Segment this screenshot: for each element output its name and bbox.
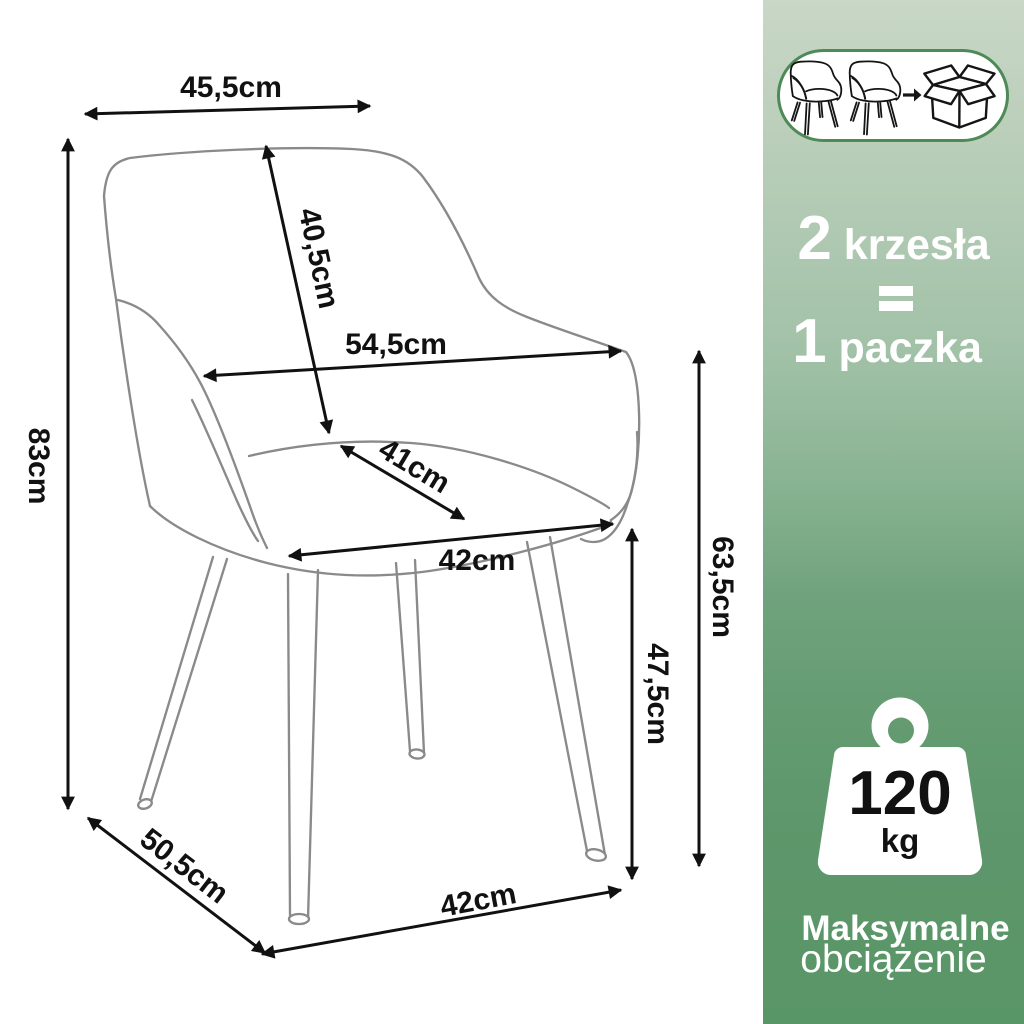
svg-text:83cm: 83cm (22, 428, 55, 505)
svg-text:45,5cm: 45,5cm (180, 71, 282, 104)
svg-text:42cm: 42cm (439, 544, 516, 577)
svg-text:kg: kg (881, 822, 920, 859)
svg-text:54,5cm: 54,5cm (345, 328, 447, 361)
svg-text:42cm: 42cm (438, 877, 519, 924)
svg-text:120: 120 (848, 759, 951, 828)
svg-text:47,5cm: 47,5cm (641, 643, 674, 745)
svg-text:63,5cm: 63,5cm (706, 536, 739, 638)
